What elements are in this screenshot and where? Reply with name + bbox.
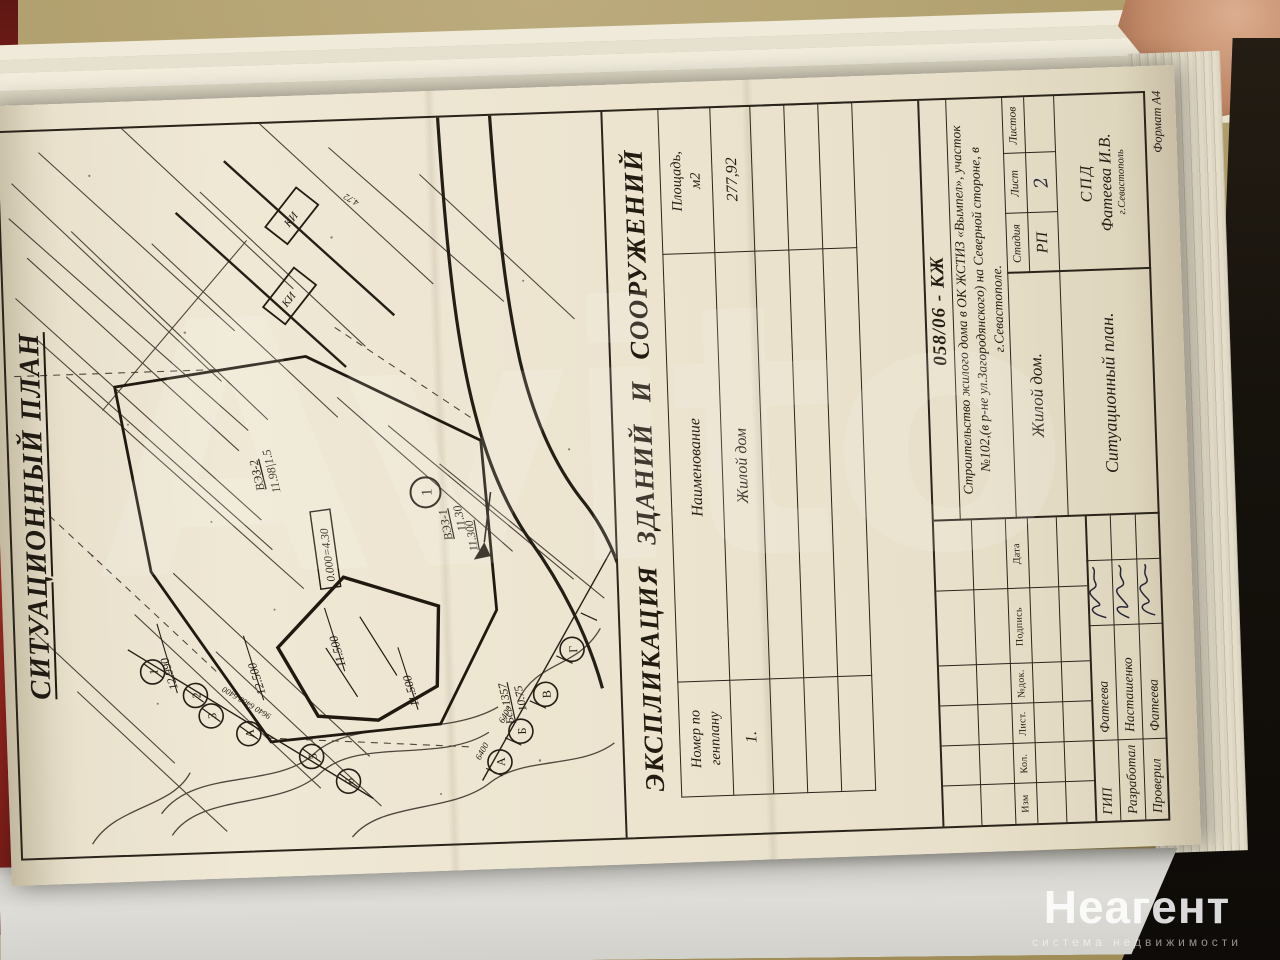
object-name: Жилой дом. bbox=[1007, 272, 1068, 519]
svg-text:11.500: 11.500 bbox=[326, 634, 348, 669]
survey-chain-b: А Б В Г 6400 6400 bbox=[466, 548, 620, 781]
svg-text:0.000=4.30: 0.000=4.30 bbox=[318, 527, 337, 582]
zero-mark-box: 0.000=4.30 bbox=[310, 509, 341, 589]
cell-empty bbox=[784, 104, 823, 250]
project-line3: г.Севастополе. bbox=[988, 265, 1009, 353]
signature-2 bbox=[1109, 561, 1137, 624]
svg-text:КИ: КИ bbox=[279, 289, 299, 310]
organization-cell: СПД Фатеева И.В. г.Севастополь bbox=[1053, 93, 1151, 272]
cell-empty bbox=[770, 678, 808, 794]
ki-building-1: КИ bbox=[265, 188, 318, 245]
rev-col-kol: Кол. bbox=[1019, 754, 1031, 774]
axis-label: Б bbox=[515, 727, 529, 734]
station-label: 6 bbox=[342, 778, 356, 784]
org-person: Фатеева И.В. bbox=[1094, 133, 1117, 231]
station-label: 3 bbox=[205, 713, 219, 719]
role-gip: ГИП bbox=[1093, 742, 1120, 815]
axis-label: А bbox=[494, 757, 508, 766]
cell-empty bbox=[818, 103, 857, 249]
cell-area: 277,92 bbox=[710, 106, 755, 252]
svg-text:11.500: 11.500 bbox=[400, 674, 422, 709]
col-number-header: Номер по генплану bbox=[678, 680, 734, 797]
neagent-logo-text: Неагент bbox=[1032, 880, 1242, 934]
svg-text:1: 1 bbox=[419, 488, 435, 496]
plan-canvas: 1 2 3 А 5 6 9640 6400 6400 А bbox=[0, 112, 628, 859]
rev-col-data: Дата bbox=[1011, 543, 1023, 565]
explication-table: Номер по генплану Наименование Площадь, … bbox=[657, 102, 876, 797]
role-checked: Проверил bbox=[1143, 741, 1170, 814]
col-area-header: Площадь, м2 bbox=[658, 108, 715, 255]
neagent-logo: Неагент система недвижимости bbox=[1032, 880, 1242, 949]
sheets-value-empty bbox=[1023, 96, 1055, 153]
drawing-sheet: 1 2 3 А 5 6 9640 6400 6400 А bbox=[0, 65, 1201, 886]
station-label: 1 bbox=[147, 669, 161, 675]
photo-of-document: 1 2 3 А 5 6 9640 6400 6400 А bbox=[0, 0, 1280, 960]
name-gip: Фатеева bbox=[1089, 628, 1118, 733]
station-label: А bbox=[243, 729, 257, 738]
axis-label: Г bbox=[566, 646, 580, 653]
name-developed: Насташенко bbox=[1114, 628, 1143, 733]
svg-text:12.990: 12.990 bbox=[157, 656, 181, 692]
neagent-logo-subtitle: система недвижимости bbox=[1032, 935, 1242, 949]
rev-col-izm: Изм bbox=[1020, 794, 1032, 813]
stage-value: РП bbox=[1027, 212, 1059, 273]
station-label: 2 bbox=[189, 692, 203, 698]
cell-empty bbox=[804, 677, 842, 793]
org-abbr: СПД bbox=[1077, 164, 1096, 203]
site-plan-drawing: 1 2 3 А 5 6 9640 6400 6400 А bbox=[0, 112, 628, 859]
stage-label: Стадия bbox=[1005, 213, 1029, 274]
role-developed: Разработал bbox=[1118, 741, 1145, 814]
sheets-label: Листов bbox=[1001, 97, 1025, 154]
rev-col-podpis: Подпись bbox=[1013, 607, 1025, 646]
col-number-line2: генплану bbox=[704, 681, 726, 796]
cell-number: 1. bbox=[730, 679, 774, 795]
svg-text:12.500: 12.500 bbox=[245, 661, 269, 697]
rev-col-doc: №док. bbox=[1016, 669, 1028, 698]
signature-3 bbox=[1134, 560, 1162, 623]
col-area-line2: м2 bbox=[684, 108, 707, 253]
sheet-frame: 1 2 3 А 5 6 9640 6400 6400 А bbox=[0, 91, 1170, 861]
svg-text:10.75: 10.75 bbox=[513, 684, 530, 712]
spot-elevation: 4.72 bbox=[341, 191, 360, 208]
rev-col-list: Лист. bbox=[1017, 711, 1029, 736]
cell-empty bbox=[750, 105, 789, 251]
explication-section: ЭКСПЛИКАЦИЯ ЗДАНИЙ И СООРУЖЕНИЙ Номер по… bbox=[602, 103, 877, 837]
title-block: Изм Кол. Лист. №док. Подпись Дата ГИП Фа… bbox=[917, 93, 1168, 826]
station-label: 5 bbox=[306, 753, 320, 759]
name-checked: Фатеева bbox=[1139, 627, 1168, 732]
drawing-name: Ситуационный план. bbox=[1059, 269, 1159, 517]
cell-empty bbox=[838, 675, 876, 791]
building-number-circle: 1 bbox=[410, 477, 441, 508]
signature-1 bbox=[1084, 561, 1112, 624]
axis-label: В bbox=[539, 690, 553, 698]
svg-text:11.300: 11.300 bbox=[464, 519, 481, 552]
roads bbox=[172, 112, 627, 703]
vez2-label: ВЭЗ-2 11.98|1.5 bbox=[245, 448, 284, 498]
org-city: г.Севастополь bbox=[1114, 149, 1127, 215]
